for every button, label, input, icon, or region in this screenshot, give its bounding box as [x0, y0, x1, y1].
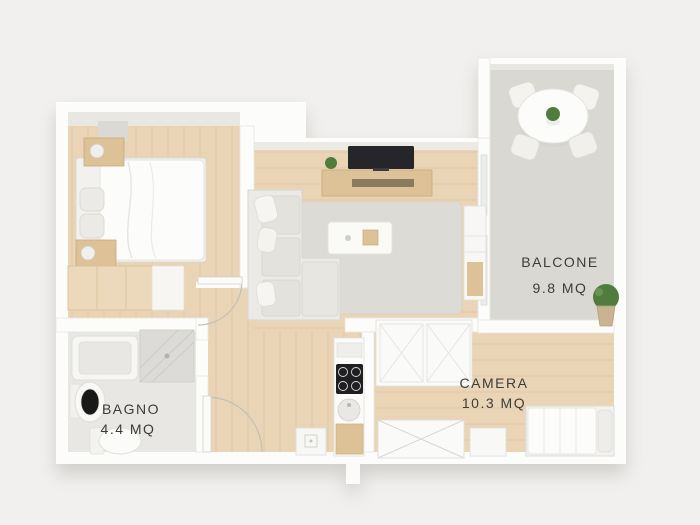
- wall-stub-bottom: [346, 464, 360, 484]
- balcone-area-label: 9.8 MQ: [533, 280, 588, 296]
- kitchen-base-cabinet: [336, 424, 363, 454]
- kitchen-faucet: [347, 403, 351, 407]
- wardrobe-white-section: [152, 266, 184, 310]
- kitchen-upper-shelf: [337, 343, 362, 357]
- kitchen-block: [334, 338, 364, 456]
- bathtub-basin: [79, 342, 131, 374]
- single-bed-pillow: [598, 410, 612, 452]
- wall-balcony-camera: [478, 320, 614, 333]
- bathtub: [72, 336, 138, 380]
- camera-wardrobe-x: [378, 420, 464, 458]
- shower: [140, 330, 194, 382]
- washbasin-inner: [81, 389, 99, 415]
- tv-console-slot: [352, 179, 414, 187]
- single-bed: [526, 406, 614, 456]
- bed-pillow-2: [80, 214, 104, 238]
- balcony-north-wall-face: [490, 64, 614, 70]
- appliance-box: [296, 428, 326, 455]
- floorplan-image: BALCONE 9.8 MQ CAMERA 10.3 MQ BAGNO 4.4 …: [0, 0, 700, 525]
- single-bed-duvet: [528, 408, 596, 454]
- camera-area-label: 10.3 MQ: [462, 395, 526, 411]
- lamp-bottom: [81, 246, 95, 260]
- bedroom-door-panel: [198, 277, 242, 284]
- bed-pillow-1: [80, 188, 104, 211]
- lamp-top: [90, 144, 104, 158]
- entrance-door-panel: [203, 396, 211, 452]
- bagno-area-label: 4.4 MQ: [101, 421, 156, 437]
- potted-plant-highlight: [595, 288, 603, 296]
- washbasin: [70, 382, 105, 422]
- coffee-table-group: [328, 222, 392, 254]
- kitchen-sink: [338, 399, 360, 421]
- balcone-label: BALCONE: [521, 254, 598, 270]
- camera-closet-unit: [376, 320, 472, 386]
- camera-label: CAMERA: [460, 375, 529, 391]
- floorplan-svg: BALCONE 9.8 MQ CAMERA 10.3 MQ BAGNO 4.4 …: [0, 0, 700, 525]
- wall-bagno-east-upper: [196, 318, 208, 340]
- sofa-chaise-cushion: [302, 262, 338, 316]
- shower-drain: [165, 354, 170, 359]
- appliance-knob: [310, 440, 313, 443]
- tall-cabinet-group: [464, 206, 486, 300]
- tv-stand: [373, 168, 389, 171]
- bedroom-wardrobe: [68, 266, 184, 310]
- table-plant-icon: [546, 107, 560, 121]
- tv-screen: [348, 146, 414, 169]
- coffee-table: [328, 222, 392, 254]
- bedroom-north-wall-face: [68, 112, 240, 126]
- sofa-pillow-3: [255, 281, 276, 307]
- bagno-label: BAGNO: [102, 401, 160, 417]
- camera-nightstand: [470, 428, 506, 456]
- coffee-table-item: [345, 235, 351, 241]
- wall-balcony-west-upper: [478, 58, 490, 138]
- plant-pot: [597, 306, 615, 326]
- living-plant-icon: [325, 157, 337, 169]
- coffee-table-tray: [363, 230, 378, 245]
- tall-cabinet-open-shelf: [467, 262, 483, 296]
- closet-body: [376, 320, 472, 386]
